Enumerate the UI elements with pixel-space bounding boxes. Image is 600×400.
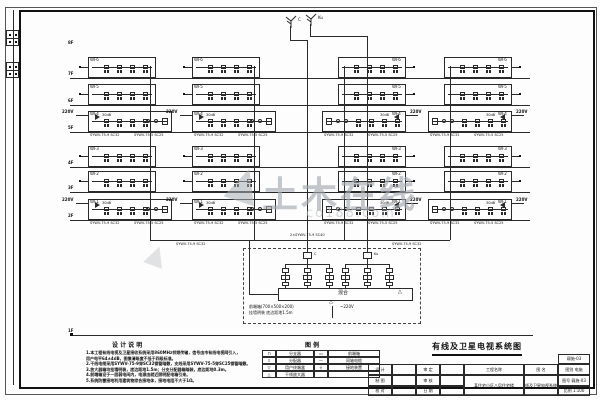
outlet-pin [130, 184, 132, 187]
tap-symbol [369, 207, 374, 211]
outlet-pin [120, 124, 122, 127]
outlet-pin [460, 97, 462, 100]
cable-spec-label: SYWV-75-5 SC25 [134, 133, 163, 137]
panel-label: WF5 [90, 85, 99, 90]
tap-symbol [234, 92, 239, 96]
titleblock-cell [392, 375, 416, 386]
outlet-pin [476, 70, 478, 73]
outlet-pin [504, 212, 506, 215]
tap-symbol [473, 65, 478, 69]
wire [81, 156, 88, 157]
entry-node [413, 66, 415, 68]
panel-label: WF6 [498, 58, 507, 63]
legend-label: 用户终端盒 [276, 364, 314, 371]
line-amplifier-box [432, 206, 438, 213]
sheet-number-box: 弱施-03 [558, 354, 590, 364]
tap-symbol [117, 119, 122, 123]
outlet-pin [491, 124, 493, 127]
panel-label: WF5 [498, 85, 507, 90]
cable-spec-label: SYWV-75-9 SC32 [324, 133, 353, 137]
tap-symbol [117, 65, 122, 69]
outlet-pin [486, 184, 488, 187]
outlet-pin [120, 70, 122, 73]
tap-symbol [130, 65, 135, 69]
outlet-pin [247, 124, 249, 127]
outlet-pin [369, 124, 371, 127]
line-amplifier-box [162, 118, 168, 125]
splitter-symbol [250, 207, 254, 211]
tap-symbol [104, 179, 109, 183]
panel-label: WF3 [498, 147, 507, 152]
entry-node [413, 93, 415, 95]
floor-marker [70, 333, 73, 336]
amplifier-icon [199, 114, 204, 120]
power-label: 220V [62, 110, 73, 115]
tap-symbol [104, 207, 109, 211]
outlet-pin [211, 97, 213, 100]
outlet-pin [462, 124, 464, 127]
floor-label: 7F [68, 72, 74, 77]
outlet-pin [460, 184, 462, 187]
titleblock-cell: 校 对 [368, 386, 392, 396]
outlet-pin [499, 159, 501, 162]
outlet-pin [221, 184, 223, 187]
outlet-pin [104, 124, 106, 127]
titleblock-cell: 比例 1:100 [558, 386, 590, 396]
outlet-pin [499, 97, 501, 100]
cable-spec-label: SYWV-75-5 SC25 [474, 221, 503, 225]
outlet-pin [221, 212, 223, 215]
outlet-pin [370, 97, 372, 100]
outlet-pin [146, 97, 148, 100]
outlet-pin [489, 184, 491, 187]
legend-symbol: — [314, 357, 328, 364]
outlet-pin [104, 184, 106, 187]
outlet-pin [473, 97, 475, 100]
entry-node [183, 155, 185, 157]
floor-line [70, 78, 530, 79]
tap-symbol [367, 65, 372, 69]
legend-title: 图 例 [305, 342, 319, 349]
outlet-pin [382, 212, 384, 215]
outlet-pin [133, 212, 135, 215]
outlet-pin [396, 159, 398, 162]
titleblock-cell: 审 定 [416, 364, 440, 375]
outlet-pin [133, 70, 135, 73]
floor-line [70, 335, 533, 336]
tap-symbol [208, 65, 213, 69]
outlet-pin [398, 124, 400, 127]
outlet-pin [120, 97, 122, 100]
outlet-pin [475, 124, 477, 127]
wire [512, 181, 519, 182]
outlet-pin [476, 184, 478, 187]
outlet-pin [473, 159, 475, 162]
tap-symbol [143, 179, 148, 183]
outlet-pin [393, 70, 395, 73]
outlet-pin [478, 124, 480, 127]
line-amplifier-box [326, 118, 332, 125]
entry-node [183, 93, 185, 95]
tap-symbol [380, 179, 385, 183]
outlet-pin [356, 124, 358, 127]
amplifier-icon [95, 202, 100, 208]
outlet-pin [221, 124, 223, 127]
splitter-symbol [442, 119, 446, 123]
wire [81, 181, 88, 182]
outlet-pin [489, 159, 491, 162]
tap-symbol [475, 207, 480, 211]
floor-line [70, 105, 530, 106]
outlet-pin [473, 184, 475, 187]
outlet-pin [499, 70, 501, 73]
outlet-pin [208, 124, 210, 127]
amp-gain-label: 30dB [380, 113, 389, 117]
outlet-pin [478, 212, 480, 215]
outlet-pin [211, 159, 213, 162]
legend-symbol [314, 371, 328, 378]
cable-spec-label: SYWV-75-5 SC25 [368, 221, 397, 225]
outlet-pin [359, 124, 361, 127]
splitter-symbol [250, 119, 254, 123]
outlet-pin [501, 212, 503, 215]
wire [185, 94, 192, 95]
tap-symbol [117, 92, 122, 96]
outlet-pin [250, 184, 252, 187]
outlet-pin [463, 184, 465, 187]
tap-symbol [247, 92, 252, 96]
tap-symbol [354, 154, 359, 158]
mixer-label: 混合 [338, 291, 348, 297]
legend-symbol: ⊓ [262, 350, 276, 357]
outlet-pin [463, 70, 465, 73]
tap-symbol [130, 207, 135, 211]
outlet-pin [356, 212, 358, 215]
wire [406, 67, 413, 68]
panel-label: WF6 [194, 58, 203, 63]
outlet-pin [396, 97, 398, 100]
cable-spec-label: SYWV-75-5 SC25 [238, 133, 267, 137]
amp-gain-label: 30dB [102, 113, 111, 117]
outlet-pin [398, 212, 400, 215]
wire [512, 156, 519, 157]
cable-spec-label: SYWV-75-9 SC32 [90, 221, 119, 225]
outlet-pin [117, 70, 119, 73]
outlet-pin [130, 70, 132, 73]
outlet-pin [367, 70, 369, 73]
entry-node [519, 93, 521, 95]
outlet-pin [357, 159, 359, 162]
splitter-symbol [146, 207, 150, 211]
outlet-pin [476, 97, 478, 100]
outlet-pin [372, 124, 374, 127]
note-line: 2.干线电缆采用SYWV-75-9穿SC32钢管暗敷，支线采用SYWV-75-5… [86, 361, 256, 367]
outlet-pin [473, 70, 475, 73]
tap-symbol [393, 65, 398, 69]
panel-label: WF2 [194, 172, 203, 177]
outlet-pin [234, 159, 236, 162]
floor-label: 5F [68, 126, 74, 131]
titleblock-cell [440, 375, 464, 386]
titleblock-cell: 日 期 [416, 386, 440, 396]
outlet-pin [396, 184, 398, 187]
tap-symbol [234, 65, 239, 69]
outlet-pin [247, 212, 249, 215]
outlet-pin [221, 70, 223, 73]
legend-symbol: ⏚ [314, 364, 328, 371]
outlet-pin [465, 124, 467, 127]
line-amplifier-box [326, 206, 332, 213]
legend-symbol: △ [262, 371, 276, 378]
floor-label: 2F [68, 214, 74, 219]
panel-label: WF6 [90, 58, 99, 63]
outlet-pin [234, 212, 236, 215]
splitter-symbol [336, 119, 340, 123]
tap-symbol [117, 179, 122, 183]
entry-node [413, 180, 415, 182]
titleblock-cell [392, 386, 416, 396]
outlet-pin [130, 159, 132, 162]
outlet-pin [393, 97, 395, 100]
outlet-pin [250, 97, 252, 100]
titleblock-cell [392, 364, 416, 375]
tap-symbol [460, 179, 465, 183]
tap-symbol [499, 92, 504, 96]
tap-symbol [499, 179, 504, 183]
cable-spec-label: SYWV-75-9 SC32 [392, 242, 421, 246]
line-amplifier-box [266, 206, 272, 213]
titleblock-cell: 设 计 [368, 364, 392, 375]
legend-label: 干线放大器 [276, 371, 314, 378]
satellite-antenna-icon [284, 14, 298, 33]
tap-symbol [104, 92, 109, 96]
tap-symbol [221, 92, 226, 96]
outlet-pin [107, 124, 109, 127]
outlet-pin [396, 70, 398, 73]
outlet-pin [104, 159, 106, 162]
floor-label: 4F [68, 161, 74, 166]
entry-node [183, 180, 185, 182]
power-label: 220V [62, 198, 73, 203]
outlet-pin [143, 124, 145, 127]
legend-label: 同轴电缆 [328, 357, 380, 364]
entry-node [79, 180, 81, 182]
outlet-pin [460, 159, 462, 162]
cable-spec-label: SYWV-75-9 SC32 [176, 242, 205, 246]
tap-symbol [208, 119, 213, 123]
wire [406, 181, 413, 182]
titleblock-cell: 某住宅小区八层住宅楼 [464, 375, 524, 396]
cad-drawing-sheet: 8F7F6F5F4F3F2F1FSYWV-75-9 SC322×SYWV-75-… [0, 0, 600, 400]
outlet-pin [120, 159, 122, 162]
outlet-pin [357, 184, 359, 187]
outlet-pin [237, 212, 239, 215]
wire [185, 181, 192, 182]
panel-label: WF3 [90, 147, 99, 152]
tap-symbol [354, 179, 359, 183]
entry-node [519, 180, 521, 182]
outlet-pin [354, 159, 356, 162]
outlet-pin [502, 97, 504, 100]
amp-gain-label: 30dB [380, 201, 389, 205]
outlet-pin [211, 212, 213, 215]
outlet-pin [499, 184, 501, 187]
splitter-symbol [336, 207, 340, 211]
tap-symbol [208, 207, 213, 211]
outlet-pin [211, 124, 213, 127]
amp-gain-label: 30dB [206, 201, 215, 205]
antenna-label: Ku [318, 16, 323, 21]
tap-symbol [356, 119, 361, 123]
tap-symbol [104, 65, 109, 69]
power-label: 220V [516, 110, 527, 115]
outlet-pin [250, 159, 252, 162]
entry-node [79, 155, 81, 157]
outlet-pin [489, 97, 491, 100]
outlet-pin [107, 97, 109, 100]
outlet-pin [117, 184, 119, 187]
power-stub [512, 115, 524, 116]
outlet-pin [383, 97, 385, 100]
wire [512, 67, 519, 68]
tap-symbol [499, 65, 504, 69]
outlet-pin [107, 70, 109, 73]
outlet-pin [130, 97, 132, 100]
tap-symbol [369, 119, 374, 123]
tap-symbol [354, 92, 359, 96]
outlet-pin [380, 159, 382, 162]
panel-label: WF3 [392, 147, 401, 152]
wire [81, 94, 88, 95]
outlet-pin [359, 212, 361, 215]
line-amplifier-box [432, 118, 438, 125]
outlet-pin [237, 159, 239, 162]
amp-gain-label: 30dB [486, 113, 495, 117]
amp-gain-label: 30dB [486, 201, 495, 205]
outlet-pin [117, 212, 119, 215]
tap-symbol [247, 65, 252, 69]
outlet-pin [463, 159, 465, 162]
tap-symbol [488, 207, 493, 211]
feeder-cable [150, 240, 450, 241]
outlet-pin [117, 97, 119, 100]
legend-label: 分配器 [276, 357, 314, 364]
splitter-symbol [450, 207, 454, 211]
outlet-pin [489, 70, 491, 73]
outlet-pin [395, 124, 397, 127]
outlet-pin [491, 212, 493, 215]
outlet-pin [146, 184, 148, 187]
tap-symbol [117, 207, 122, 211]
tap-symbol [393, 154, 398, 158]
outlet-pin [224, 124, 226, 127]
outlet-pin [143, 212, 145, 215]
outlet-pin [502, 159, 504, 162]
note-line: 5.系统防雷接地利用建筑物综合接地体，接地电阻不大于1Ω。 [86, 378, 256, 384]
splitter-symbol [146, 119, 150, 123]
arrow-up-icon: △ [329, 300, 333, 306]
outlet-pin [237, 70, 239, 73]
tap-symbol [460, 92, 465, 96]
amplifier-icon [500, 114, 505, 120]
outlet-pin [133, 124, 135, 127]
outlet-pin [224, 184, 226, 187]
tap-symbol [367, 154, 372, 158]
notes-title: 设 计 说 明 [112, 342, 142, 349]
outlet-pin [104, 97, 106, 100]
legend-symbol: ▽ [262, 364, 276, 371]
outlet-pin [208, 97, 210, 100]
outlet-pin [247, 184, 249, 187]
tap-symbol [104, 119, 109, 123]
power-label: 220V [410, 110, 421, 115]
outlet-pin [224, 97, 226, 100]
wire [406, 156, 413, 157]
tap-symbol [247, 154, 252, 158]
outlet-pin [383, 159, 385, 162]
outlet-pin [120, 212, 122, 215]
tap-symbol [393, 92, 398, 96]
tap-symbol [380, 92, 385, 96]
titleblock-cell: 工程名称 [464, 364, 524, 375]
tap-symbol [462, 207, 467, 211]
outlet-pin [208, 184, 210, 187]
titleblock-cell: 制 图 [368, 375, 392, 386]
outlet-pin [250, 70, 252, 73]
panel-label: WF2 [90, 172, 99, 177]
outlet-pin [370, 184, 372, 187]
tap-symbol [130, 92, 135, 96]
outlet-pin [234, 97, 236, 100]
wire [185, 156, 192, 157]
outlet-pin [221, 97, 223, 100]
floor-line [70, 167, 530, 168]
outlet-pin [250, 212, 252, 215]
tap-symbol [486, 65, 491, 69]
tap-symbol [208, 154, 213, 158]
outlet-pin [211, 70, 213, 73]
cable-spec-label: SYWV-75-5 SC25 [368, 133, 397, 137]
tap-symbol [143, 65, 148, 69]
outlet-pin [211, 184, 213, 187]
outlet-pin [383, 70, 385, 73]
cable-spec-label: SYWV-75-9 SC32 [194, 221, 223, 225]
tap-symbol [221, 179, 226, 183]
outlet-pin [383, 184, 385, 187]
outlet-pin [107, 212, 109, 215]
legend-symbol: ▭ [314, 350, 328, 357]
antenna-label: C [298, 18, 301, 23]
outlet-pin [465, 212, 467, 215]
outlet-pin [475, 212, 477, 215]
power-stub [180, 203, 192, 204]
outlet-pin [486, 159, 488, 162]
wire [406, 94, 413, 95]
outlet-pin [357, 70, 359, 73]
tap-symbol [221, 154, 226, 158]
amplifier-icon [394, 114, 399, 120]
outlet-pin [237, 184, 239, 187]
outlet-pin [146, 159, 148, 162]
panel-label: WF3 [194, 147, 203, 152]
outlet-pin [107, 184, 109, 187]
power-label: 220V [410, 198, 421, 203]
power-stub [76, 115, 88, 116]
outlet-pin [234, 70, 236, 73]
outlet-pin [488, 124, 490, 127]
headend-note: 挂墙明装 底边距地1.5m [249, 311, 293, 316]
tap-symbol [462, 119, 467, 123]
